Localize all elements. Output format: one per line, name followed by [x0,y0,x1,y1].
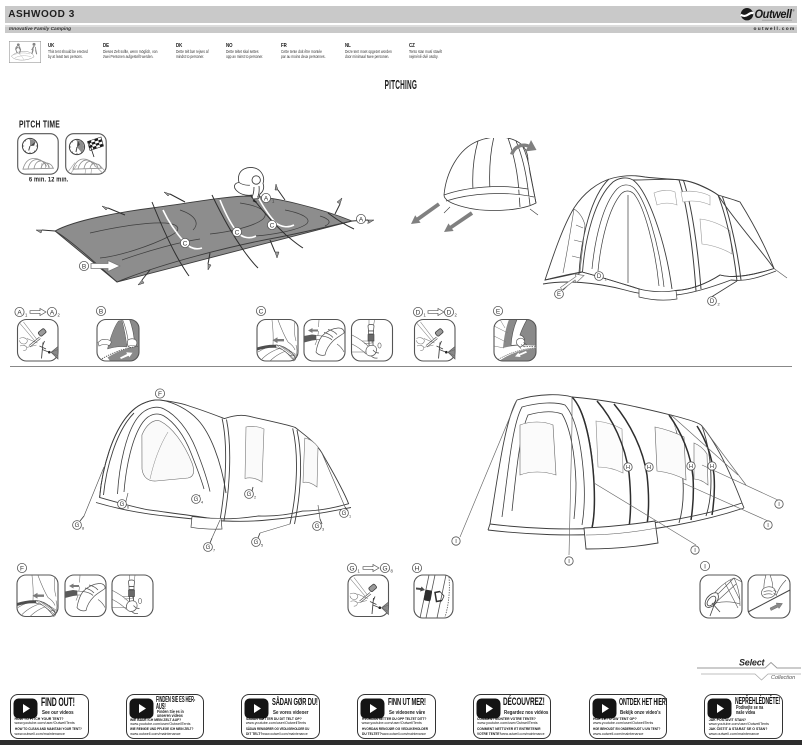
svg-text:G: G [247,492,252,498]
svg-text:A: A [264,195,269,202]
svg-text:D: D [597,274,602,280]
svg-text:1: 1 [25,313,28,318]
svg-text:Collection: Collection [771,675,795,681]
svg-text:A: A [17,309,22,316]
svg-text:H: H [626,465,630,471]
svg-text:I: I [704,563,706,570]
svg-text:B: B [82,263,86,270]
svg-text:Outwell: Outwell [755,9,793,21]
svg-text:H: H [647,465,651,471]
svg-text:5: 5 [261,543,263,547]
svg-text:G: G [194,497,199,503]
svg-text:®: ® [793,9,796,13]
svg-text:E: E [496,308,501,315]
svg-text:2: 2 [58,313,61,318]
svg-text:7: 7 [213,548,215,552]
svg-text:1: 1 [349,514,351,518]
svg-text:G: G [342,511,347,517]
svg-text:F: F [20,565,24,572]
svg-text:C: C [235,229,240,236]
svg-text:4: 4 [201,500,203,504]
svg-text:C: C [183,240,188,247]
svg-text:C: C [270,222,275,229]
svg-text:H: H [415,565,420,572]
svg-text:C: C [259,308,264,315]
svg-text:G: G [315,524,320,530]
svg-text:G: G [349,565,354,572]
svg-text:G: G [254,540,259,546]
svg-text:1: 1 [358,569,361,574]
svg-text:B: B [99,308,103,315]
svg-text:D: D [447,309,452,316]
svg-text:E: E [557,292,561,298]
svg-text:G: G [382,565,387,572]
svg-text:A: A [359,216,364,223]
svg-text:Select: Select [739,658,766,668]
svg-text:8: 8 [391,569,394,574]
svg-text:G: G [120,502,125,508]
svg-text:2: 2 [254,495,256,499]
svg-text:A: A [50,309,55,316]
svg-text:H: H [689,464,693,470]
svg-text:8: 8 [82,526,84,530]
svg-text:2: 2 [455,313,458,318]
svg-text:H: H [710,464,714,470]
svg-text:1: 1 [424,313,427,318]
svg-text:D: D [416,309,421,316]
svg-text:6: 6 [127,505,129,509]
svg-text:G: G [206,545,211,551]
svg-text:F: F [158,391,162,398]
svg-text:3: 3 [322,527,324,531]
svg-text:G: G [75,523,80,529]
